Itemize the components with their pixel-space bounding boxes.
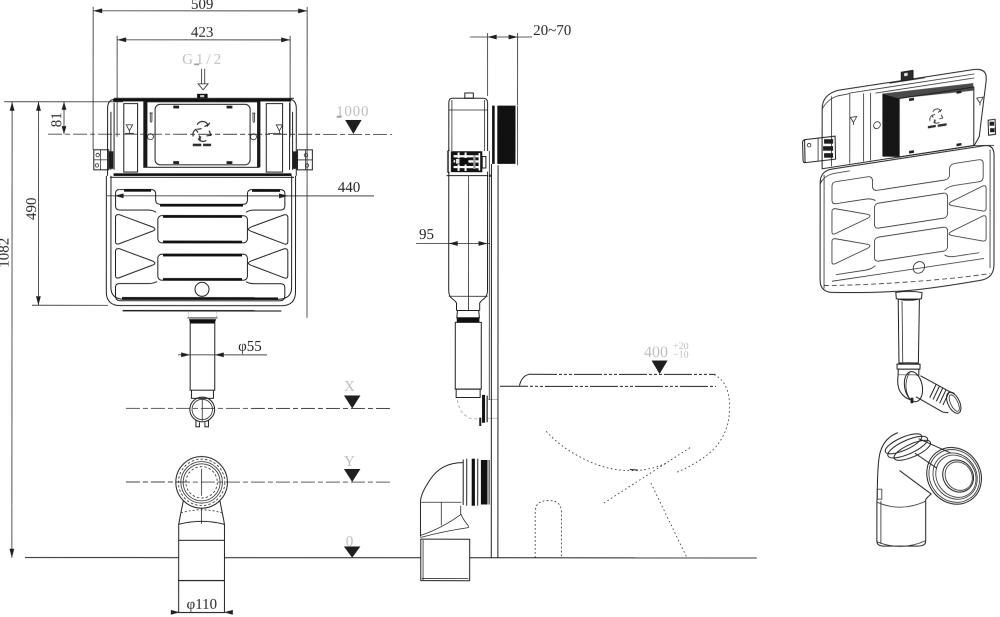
svg-text:Y: Y <box>344 454 355 470</box>
svg-text:G1/2: G1/2 <box>182 52 224 68</box>
svg-text:X: X <box>344 379 355 395</box>
svg-text:509: 509 <box>191 0 214 13</box>
svg-text:490: 490 <box>24 197 40 220</box>
svg-text:95: 95 <box>419 227 434 243</box>
svg-text:400: 400 <box>644 344 668 361</box>
svg-text:423: 423 <box>191 25 214 41</box>
svg-text:81: 81 <box>49 112 65 127</box>
svg-text:1082: 1082 <box>0 238 13 268</box>
svg-text:−10: −10 <box>673 350 689 361</box>
svg-text:440: 440 <box>338 180 361 196</box>
svg-text:20~70: 20~70 <box>533 23 571 39</box>
svg-text:φ55: φ55 <box>238 339 262 355</box>
svg-text:φ110: φ110 <box>187 597 218 613</box>
